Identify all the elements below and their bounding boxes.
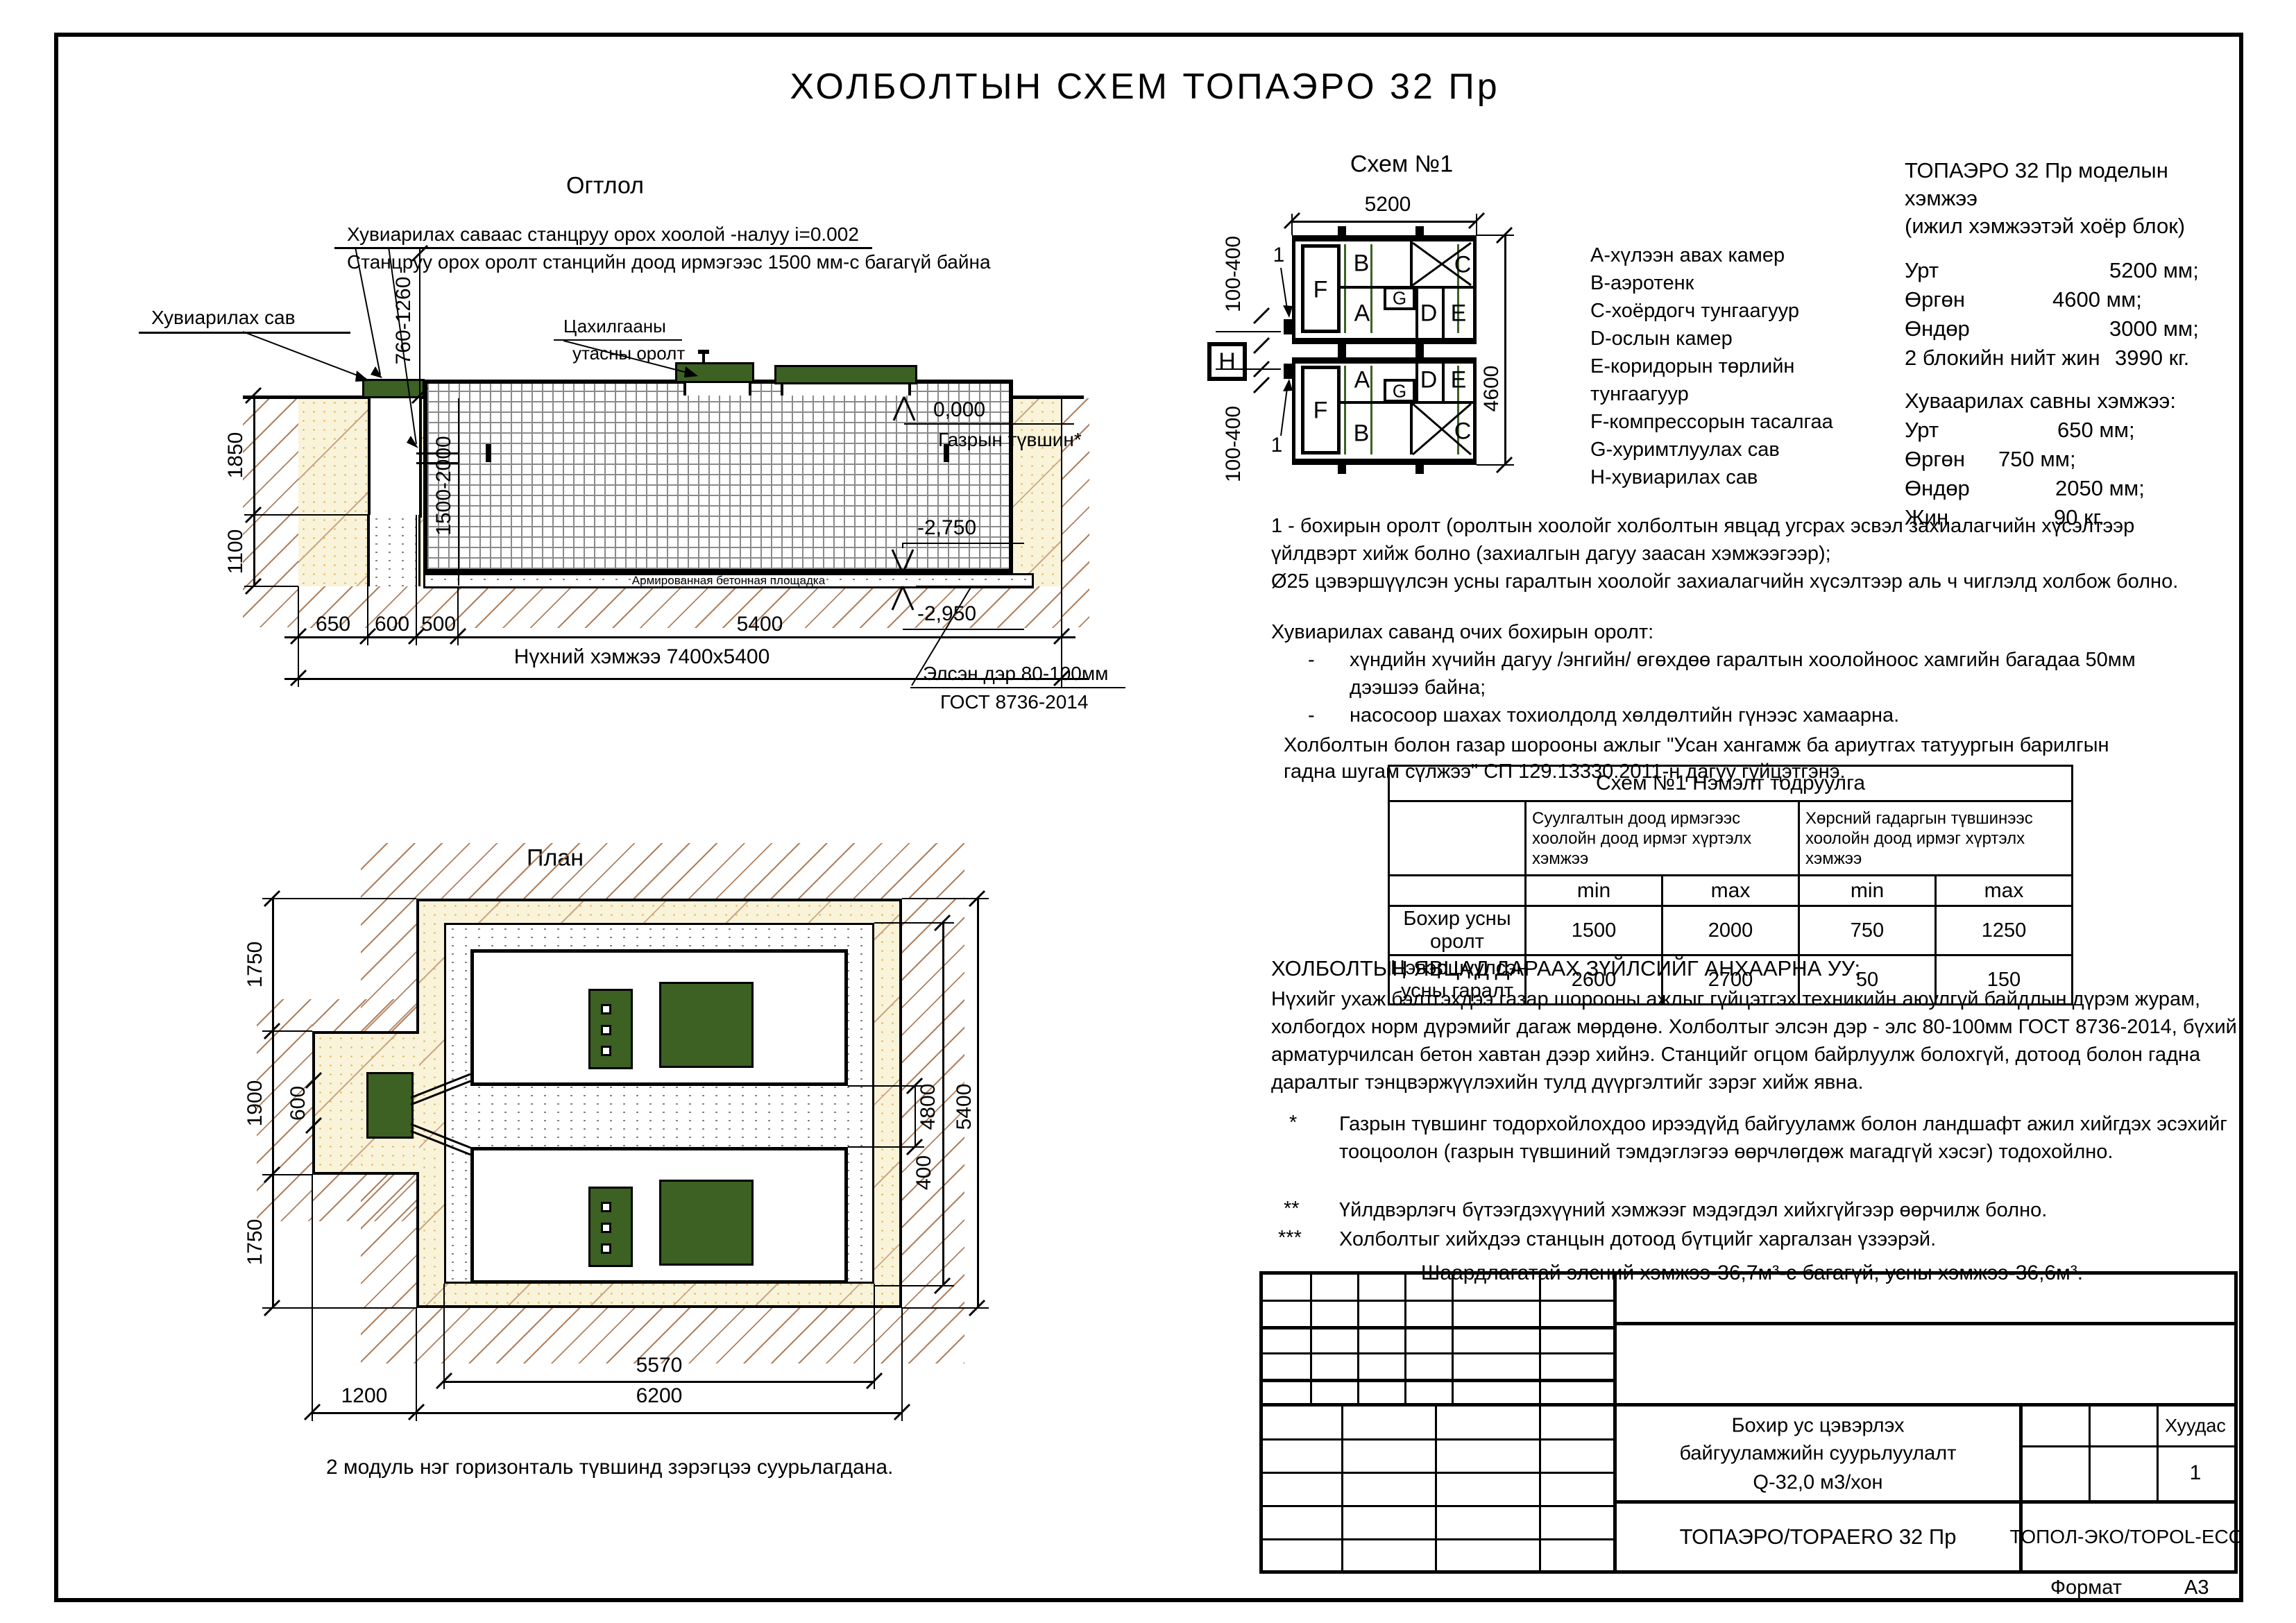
tb-grid-line [1341, 1407, 1343, 1570]
tb-vline-main [1613, 1275, 1617, 1570]
tb-hline-3 [1613, 1500, 2234, 1504]
plan-caption: 2 модуль нэг горизонталь түвшинд зэрэгцэ… [326, 1456, 893, 1479]
level-2750: -2,750 [917, 516, 976, 540]
plan-dim-left [272, 899, 274, 1308]
legend-item-f: F-компрессорын тасалгаа [1590, 408, 1833, 436]
plan-dim-6200-line [312, 1412, 902, 1414]
schema-dim-4600-line [1504, 235, 1506, 465]
block1-right-wall [1473, 235, 1477, 344]
electric-inlet-label-1: Цахилгааны [563, 316, 666, 337]
note-p1a: 1 - бохирын оролт (оролтын хоолойг холбо… [1271, 515, 2134, 538]
block1-bc-divider [1410, 241, 1413, 287]
bullet-dash-1: - [1308, 649, 1315, 672]
shaft-base-column [368, 515, 420, 586]
table-max-a: max [1663, 876, 1799, 906]
level-0000-line [904, 423, 1074, 425]
stub-3 [1338, 344, 1346, 357]
spec-row-label: Өргөн [1905, 447, 1965, 472]
tb-grid-line [1404, 1275, 1406, 1403]
warning-title: ХОЛБОЛТЫН ЯВЦАД ДАРААХ ЗҮЙЛСИЙГ АНХААРНА… [1271, 956, 1860, 981]
legend-item-g: G-хуримтлуулах сав [1590, 436, 1833, 464]
station-cover-1 [675, 362, 754, 383]
spec-row-value: 3990 кг. [2115, 346, 2189, 371]
spec-row-label: Өндөр [1905, 476, 1970, 501]
spec-row-value: 5200 мм; [2109, 258, 2199, 283]
level-2750-line [903, 543, 1024, 544]
dim-chain-total [284, 678, 1089, 680]
spec-heading-1: ТОПАЭРО 32 Пр моделын [1905, 158, 2168, 183]
block2-gd-divider [1415, 364, 1418, 402]
note-p2: Ø25 цэвэршүүлсэн усны гаралтын хоолойг з… [1271, 570, 2178, 593]
sand-pillow-label-1: Элсэн дэр 80-100мм [923, 663, 1108, 685]
dim-ext-760 [419, 248, 420, 396]
table-col-b: Хөрсний гадаргын түвшинээс хоолойн доод … [1799, 801, 2073, 876]
plan-dim-5400-line [977, 899, 979, 1308]
tb-grid-line [1263, 1300, 1613, 1302]
plan-distribution-box [366, 1072, 414, 1139]
spec-subheading: Хуваарилах савны хэмжээ: [1905, 389, 2176, 414]
table-blank [1389, 876, 1526, 906]
footnote-mark: * [1289, 1112, 1297, 1135]
dim-line-left [253, 396, 255, 586]
table-corner-cell [1389, 801, 1526, 876]
sand-pillow-underline [910, 687, 1125, 688]
block2-green-line-1 [1344, 366, 1346, 454]
table-title: Схем №1 Нэмэлт тодруулга [1389, 766, 2073, 801]
note-p4a: Холболтын болон газар шорооны ажлыг "Уса… [1284, 734, 2109, 757]
tb-hline-1 [1613, 1322, 2234, 1325]
warning-body: Нүхийг ухаж бэлтгэхдээ газар шорооны ажл… [1271, 985, 2243, 1096]
note-underline [334, 247, 872, 249]
block1-gd-divider [1415, 287, 1418, 338]
table-min-b: min [1799, 876, 1936, 906]
block1-top-rail [1292, 235, 1477, 241]
legend-item-h: Н-хувиарилах сав [1590, 464, 1833, 491]
table-row-label: Бохир усны оролт [1389, 906, 1526, 955]
note-b2: насосоор шахах тохиолдолд хөлдөлтийн гүн… [1350, 704, 1899, 727]
table-cell: 750 [1799, 906, 1936, 955]
spec-heading-3: (ижил хэмжээтэй хоёр блок) [1905, 214, 2185, 239]
title-block: Бохир ус цэвэрлэх байгууламжийн суурьлуу… [1259, 1271, 2238, 1574]
tb-grid-line [1263, 1505, 1613, 1507]
tb-grid-line [1263, 1438, 1613, 1441]
block1-green-line-2 [1370, 244, 1372, 333]
stub-1 [1338, 226, 1346, 235]
footnote-text: Газрын түвшинг тодорхойлохдоо ирээдүйд б… [1339, 1110, 2234, 1166]
spec-row-label: Өргөн [1905, 287, 1965, 312]
stub-2 [1415, 226, 1424, 235]
tb-grid-line [1310, 1275, 1312, 1403]
format-label: Формат [2050, 1577, 2122, 1599]
note-b1a: хүндийн хүчийн дагуу /энгийн/ өгөхдөө га… [1350, 649, 2136, 672]
earth-hatch-left [243, 398, 298, 627]
plan-dim-4800-line [942, 923, 944, 1286]
note-p1b: үйлдвэрт хийж болно (захиалгын дагуу заа… [1271, 543, 1831, 566]
distribution-tank-label: Хувиарилах сав [151, 307, 296, 329]
electric-underline [554, 339, 682, 341]
control-box-2-switch-1 [601, 1202, 611, 1212]
bullet-dash-2: - [1308, 704, 1315, 727]
dim-line-1500 [458, 398, 459, 586]
legend-item-c: С-хоёрдогч тунгаагуур [1590, 297, 1833, 325]
footnote-mark: ** [1284, 1198, 1300, 1221]
spec-row-value: 650 мм; [2057, 418, 2135, 443]
block2-bc-divider [1410, 402, 1413, 454]
tb-grid-line [1539, 1407, 1541, 1570]
block2-inlet-nozzle [1284, 364, 1293, 379]
legend-item-e2: тунгаагуур [1590, 380, 1833, 408]
legend-item-d: D-ослын камер [1590, 325, 1833, 352]
block1-de-divider [1442, 287, 1445, 338]
table-max-b: max [1936, 876, 2073, 906]
plan-hatch-notch-top [312, 999, 416, 1031]
tb-grid-line [1357, 1275, 1359, 1403]
footnote-text: Холболтыг хийхдээ станцын дотоод бүтцийг… [1339, 1225, 2234, 1253]
note-b1b: дээшээ байна; [1350, 677, 1486, 699]
block2-right-wall [1473, 357, 1477, 465]
control-box-1-switch-3 [601, 1046, 611, 1056]
drawing-sheet: ХОЛБОЛТЫН СХЕМ ТОПАЭРО 32 Пр Огтлол Хуви… [0, 0, 2296, 1623]
spec-row-value: 4600 мм; [2052, 287, 2142, 312]
tb-grid-line [1263, 1472, 1613, 1474]
table-min-a: min [1526, 876, 1663, 906]
level-2950-line [903, 629, 1024, 630]
level-0000: 0,000 [933, 398, 985, 422]
block1-green-line-1 [1344, 244, 1346, 333]
spec-heading-2: хэмжээ [1905, 186, 1978, 211]
legend-item-b: В-аэротенк [1590, 269, 1833, 297]
table-cell: 1500 [1526, 906, 1663, 955]
stub-5 [1338, 465, 1346, 474]
lifting-lug-left [486, 444, 491, 462]
station-body [423, 380, 1013, 573]
spec-row-value: 3000 мм; [2109, 316, 2199, 341]
tb-grid-line [2019, 1445, 2234, 1447]
table-cell: 1250 [1936, 906, 2073, 955]
footnote-mark: *** [1278, 1227, 1302, 1250]
block2-top-rail [1292, 357, 1477, 364]
block2-green-line-2 [1370, 366, 1372, 454]
dim-chain-bottom [284, 636, 1075, 638]
note-p3: Хувиарилах саванд очих бохирын оролт: [1271, 621, 1653, 644]
tb-grid-line [2089, 1407, 2091, 1500]
compressor-unit-2 [659, 1180, 754, 1266]
tb-grid-line [1263, 1379, 1613, 1382]
block1-inlet-nozzle [1284, 319, 1293, 334]
table-col-a: Суулгалтын доод ирмэгээс хоолойн доод ир… [1526, 801, 1799, 876]
page-title: ХОЛБОЛТЫН СХЕМ ТОПАЭРО 32 Пр [624, 66, 1665, 108]
block2-bottom-rail [1292, 459, 1477, 465]
station-cover-2 [774, 365, 917, 384]
table-row: Бохир усны оролт 1500 2000 750 1250 [1389, 906, 2073, 955]
table-cell: 2000 [1663, 906, 1799, 955]
footnote-text: Үйлдвэрлэгч бүтээгдэхүүний хэмжээг мэдэг… [1339, 1196, 2234, 1224]
electric-inlet-label-2: утасны оролт [572, 343, 685, 364]
control-box-1-switch-1 [601, 1004, 611, 1014]
section-note-line1: Хувиарилах саваас станцруу орох хоолой -… [347, 223, 859, 246]
tb-grid-line [1263, 1352, 1613, 1354]
control-box-2-switch-2 [601, 1223, 611, 1233]
plan-dim-5570-line [444, 1381, 874, 1383]
spec-row-label: Өндөр [1905, 316, 1970, 341]
spec-row-value: 750 мм; [1998, 447, 2076, 472]
tb-grid-line [2157, 1407, 2159, 1500]
control-box-2-switch-3 [601, 1243, 611, 1254]
legend-item-a: А-хүлээн авах камер [1590, 241, 1833, 269]
schema-dim-5200-line [1292, 221, 1477, 223]
sand-pillow-label-2: ГОСТ 8736-2014 [940, 691, 1088, 713]
ground-level-label: Газрын түвшин* [938, 429, 1082, 451]
block2-de-divider [1442, 364, 1445, 402]
compressor-unit-1 [659, 982, 754, 1068]
tb-grid-line [1263, 1326, 1613, 1329]
plan-hatch-notch-bottom [312, 1175, 416, 1221]
tb-grid-line [1435, 1407, 1437, 1570]
plan-hatch-top [361, 843, 964, 899]
tb-grid-line [1263, 1538, 1613, 1540]
spec-row-value: 2050 мм; [2055, 476, 2145, 501]
vent-stem [702, 352, 705, 364]
plan-dim-400-line [915, 1086, 916, 1147]
format-value: А3 [2184, 1577, 2209, 1599]
tb-grid-line [1539, 1275, 1541, 1403]
stub-4 [1415, 344, 1424, 357]
control-box-1-switch-2 [601, 1025, 611, 1035]
stub-6 [1415, 465, 1424, 474]
spec-row-label: 2 блокийн нийт жин [1905, 346, 2100, 371]
tb-grid-line [1452, 1275, 1454, 1403]
block1-bottom-rail [1292, 338, 1477, 344]
spec-row-label: Урт [1905, 418, 1939, 443]
spec-row-label: Урт [1905, 258, 1939, 283]
schema-legend: А-хүлээн авах камер В-аэротенк С-хоёрдог… [1590, 241, 1833, 491]
legend-item-e1: Е-коридорын төрлийн [1590, 352, 1833, 380]
distribution-underline [139, 332, 350, 334]
level-2950: -2,950 [917, 602, 976, 626]
section-note-line2: Станцруу орох оролт станцийн доод ирмэгэ… [347, 251, 991, 273]
distribution-shaft [368, 398, 422, 518]
distribution-cover [362, 379, 425, 398]
h-box: Н [1207, 342, 1247, 381]
plan-dim-600-line [314, 1080, 315, 1126]
